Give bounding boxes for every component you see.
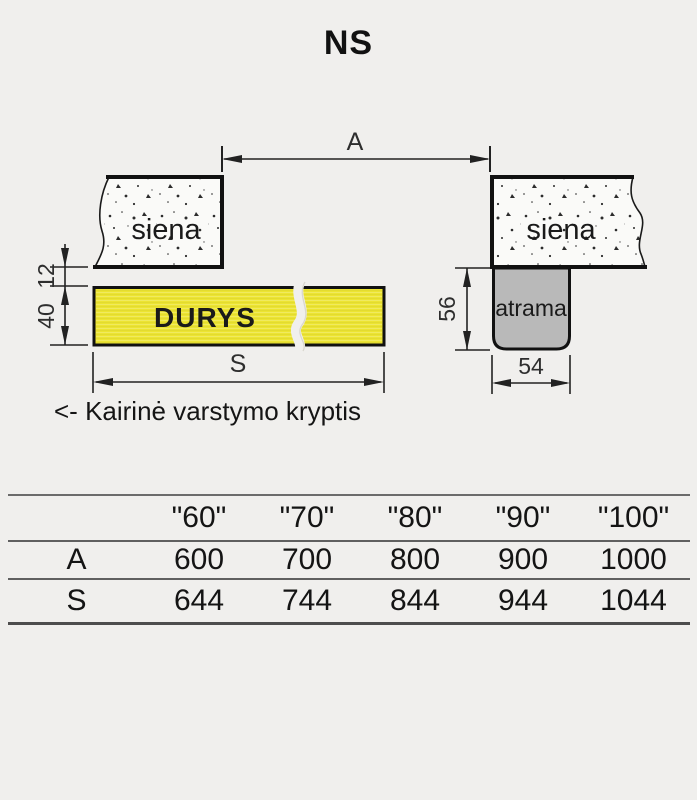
opening-direction-caption: <- Kairinė varstymo kryptis: [54, 396, 361, 427]
dim-a-label: A: [347, 128, 364, 156]
dim-54-label: 54: [518, 353, 544, 379]
table-cell: 1044: [577, 579, 690, 623]
size-column-header: "90": [469, 495, 577, 541]
dimension-54: 54: [492, 353, 570, 394]
left-wall-label: siena: [131, 214, 201, 246]
dimension-a: A: [222, 128, 490, 172]
dimension-56: 56: [434, 268, 490, 350]
table-cell: 644: [145, 579, 253, 623]
size-table: "60" "70" "80" "90" "100" A 600 700 800 …: [8, 494, 690, 625]
table-cell: 844: [361, 579, 469, 623]
left-wall: siena: [93, 175, 224, 269]
door-label: DURYS: [154, 302, 256, 333]
door-installation-diagram: A siena siena DURYS 12 40: [0, 0, 697, 460]
table-cell: 600: [145, 541, 253, 579]
size-column-header: "100": [577, 495, 690, 541]
right-wall-label: siena: [526, 214, 596, 246]
table-row: S 644 744 844 944 1044: [8, 579, 690, 623]
dim-12-label: 12: [33, 263, 59, 289]
door: DURYS: [94, 281, 384, 352]
dim-40-label: 40: [33, 303, 59, 329]
dimension-s: S: [93, 350, 384, 393]
dim-s-label: S: [230, 350, 247, 378]
support-block: atrama: [494, 268, 570, 349]
right-wall: siena: [490, 175, 647, 269]
table-cell: 900: [469, 541, 577, 579]
table-cell: 944: [469, 579, 577, 623]
size-column-header: "80": [361, 495, 469, 541]
table-row: A 600 700 800 900 1000: [8, 541, 690, 579]
size-column-header: "60": [145, 495, 253, 541]
support-label: atrama: [495, 295, 567, 321]
size-table-corner-cell: [8, 495, 145, 541]
dim-56-label: 56: [434, 296, 460, 322]
table-cell: 700: [253, 541, 361, 579]
table-cell: 1000: [577, 541, 690, 579]
table-cell: 800: [361, 541, 469, 579]
row-label: A: [8, 541, 145, 579]
row-label: S: [8, 579, 145, 623]
table-cell: 744: [253, 579, 361, 623]
size-table-header-row: "60" "70" "80" "90" "100": [8, 495, 690, 541]
size-column-header: "70": [253, 495, 361, 541]
dimension-12-40: 12 40: [33, 244, 88, 345]
